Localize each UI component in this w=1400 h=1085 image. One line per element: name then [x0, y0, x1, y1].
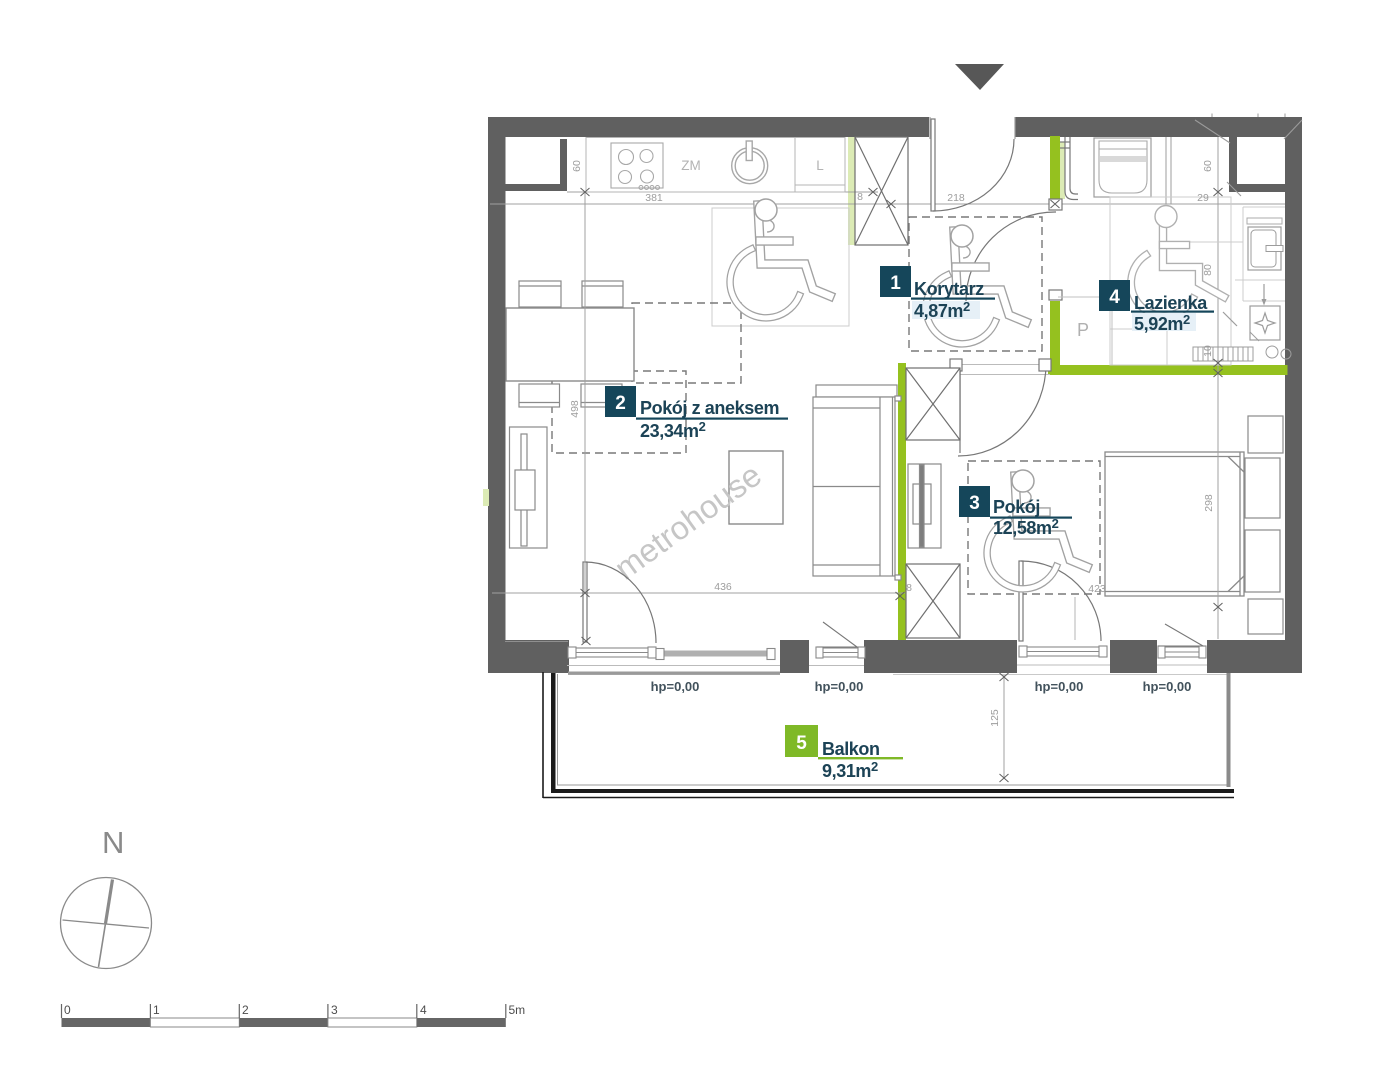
svg-text:3: 3: [331, 1003, 338, 1017]
svg-text:ZM: ZM: [681, 158, 701, 173]
svg-text:Balkon: Balkon: [822, 739, 880, 759]
svg-text:436: 436: [714, 581, 732, 593]
svg-text:Pokój z aneksem: Pokój z aneksem: [640, 398, 779, 418]
svg-text:80: 80: [1202, 264, 1214, 276]
svg-text:2: 2: [242, 1003, 249, 1017]
svg-text:hp=0,00: hp=0,00: [651, 679, 700, 694]
svg-text:hp=0,00: hp=0,00: [815, 679, 864, 694]
svg-text:12,58m2: 12,58m2: [993, 516, 1059, 538]
svg-text:60: 60: [1202, 160, 1214, 172]
svg-text:5m: 5m: [509, 1003, 526, 1017]
svg-text:498: 498: [569, 400, 581, 418]
svg-text:0: 0: [64, 1003, 71, 1017]
svg-text:3: 3: [969, 493, 980, 514]
svg-text:23,34m2: 23,34m2: [640, 419, 706, 441]
svg-text:8: 8: [857, 191, 863, 203]
svg-text:4,87m2: 4,87m2: [914, 299, 970, 321]
svg-text:423: 423: [1088, 583, 1106, 595]
svg-text:5: 5: [796, 733, 807, 754]
svg-text:125: 125: [989, 709, 1001, 727]
svg-text:298: 298: [1203, 494, 1215, 512]
svg-text:218: 218: [947, 192, 965, 204]
svg-text:5,92m2: 5,92m2: [1134, 312, 1190, 334]
svg-text:60: 60: [571, 160, 583, 172]
svg-text:L: L: [816, 158, 824, 173]
svg-text:hp=0,00: hp=0,00: [1143, 679, 1192, 694]
svg-text:2: 2: [615, 393, 626, 414]
svg-text:Pokój: Pokój: [993, 497, 1040, 517]
svg-text:hp=0,00: hp=0,00: [1035, 679, 1084, 694]
svg-text:8: 8: [906, 582, 912, 594]
svg-text:1: 1: [890, 273, 901, 294]
svg-text:4: 4: [420, 1003, 427, 1017]
svg-text:10: 10: [1202, 345, 1214, 357]
svg-text:P: P: [1077, 320, 1089, 340]
svg-text:381: 381: [645, 192, 663, 204]
svg-text:Korytarz: Korytarz: [914, 279, 984, 299]
svg-text:Lazienka: Lazienka: [1134, 293, 1208, 313]
svg-text:N: N: [102, 825, 124, 860]
svg-text:9,31m2: 9,31m2: [822, 759, 878, 781]
svg-text:29: 29: [1197, 192, 1209, 204]
svg-text:4: 4: [1109, 287, 1120, 308]
svg-text:1: 1: [153, 1003, 160, 1017]
